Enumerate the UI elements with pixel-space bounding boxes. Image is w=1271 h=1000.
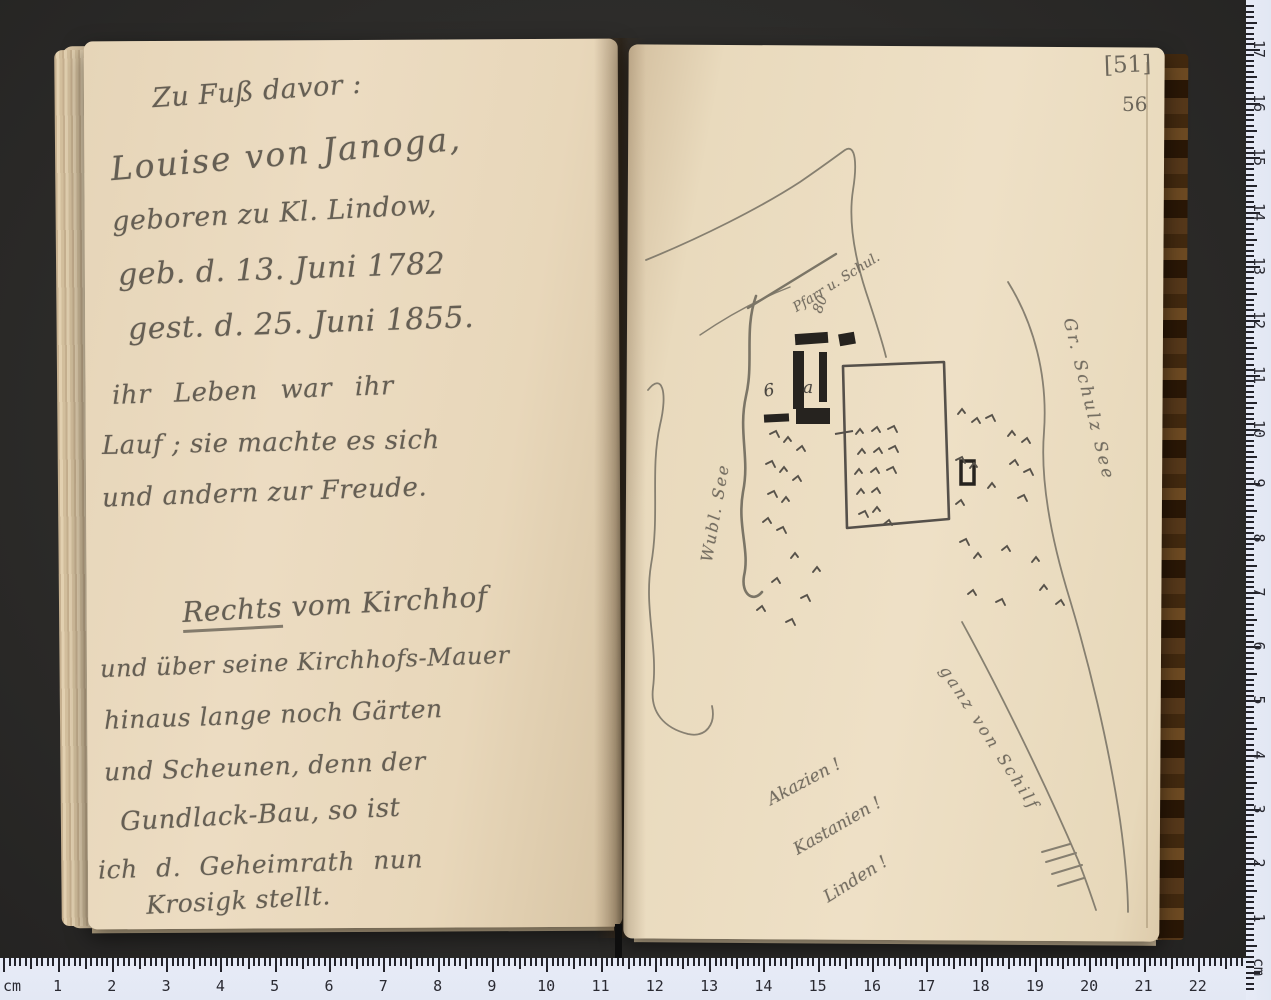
ruler-tick	[953, 958, 955, 969]
ruler-tick	[725, 958, 727, 966]
ruler-tick	[101, 958, 103, 966]
ruler-tick	[666, 958, 668, 966]
ruler-tick	[899, 958, 901, 969]
ruler-tick	[1246, 505, 1254, 507]
ruler-tick	[606, 958, 608, 966]
ruler-tick	[362, 958, 364, 966]
ruler-tick	[1154, 958, 1156, 966]
ruler-tick	[910, 958, 912, 966]
ruler-tick	[720, 958, 722, 966]
ruler-tick	[763, 958, 765, 972]
ruler-tick	[535, 958, 537, 966]
ruler-tick	[1246, 396, 1254, 398]
ruler-tick	[334, 958, 336, 966]
ruler-number: 3	[154, 977, 178, 995]
ruler-tick	[96, 958, 98, 966]
ruler-number: 17	[914, 977, 938, 995]
ruler-tick	[318, 958, 320, 966]
ruler-number: 2	[100, 977, 124, 995]
ruler-number: 14	[1250, 200, 1268, 224]
ruler-tick	[1105, 958, 1107, 966]
ruler-tick	[888, 958, 890, 966]
ruler-tick	[677, 958, 679, 966]
ruler-tick	[1246, 130, 1257, 132]
ruler-number: 11	[1250, 363, 1268, 387]
ruler-tick	[541, 958, 543, 966]
ruler-tick	[372, 958, 374, 966]
ruler-tick	[134, 958, 136, 966]
ruler-tick	[367, 958, 369, 966]
ruler-tick	[514, 958, 516, 966]
ruler-tick	[1246, 337, 1254, 339]
ruler-tick	[400, 958, 402, 966]
ruler-tick	[264, 958, 266, 966]
ruler-number: 17	[1250, 37, 1268, 61]
ruler-tick	[1051, 958, 1053, 966]
ruler-tick	[1246, 499, 1254, 501]
ruler-tick	[52, 958, 54, 966]
ruler-tick	[986, 958, 988, 966]
ruler-tick	[220, 958, 222, 972]
ruler-tick	[769, 958, 771, 966]
ruler-tick	[421, 958, 423, 966]
ruler-tick	[590, 958, 592, 966]
ruler-tick	[1246, 776, 1254, 778]
ruler-tick	[1246, 81, 1254, 83]
ruler-tick	[823, 958, 825, 966]
ruler-tick	[30, 958, 32, 969]
ruler-tick	[1246, 890, 1257, 892]
ruler-tick	[905, 958, 907, 966]
ruler-tick	[867, 958, 869, 966]
ruler-tick	[1246, 901, 1254, 903]
ruler-tick	[144, 958, 146, 966]
ruler-tick	[1246, 342, 1254, 344]
ruler-tick	[1246, 228, 1254, 230]
ruler-tick	[1246, 5, 1254, 7]
ruler-tick	[1165, 958, 1167, 966]
ruler-tick	[9, 958, 11, 966]
ruler-number: 15	[1250, 145, 1268, 169]
ruler-tick	[454, 958, 456, 966]
ruler-tick	[1246, 288, 1254, 290]
ruler-tick	[1029, 958, 1031, 966]
ruler-tick	[601, 958, 603, 972]
ruler-number: 11	[589, 977, 613, 995]
ruler-tick	[1246, 65, 1254, 67]
ruler-tick	[1246, 461, 1254, 463]
ruler-tick	[801, 958, 803, 966]
ruler-tick	[1246, 624, 1254, 626]
ruler-tick	[182, 958, 184, 966]
ruler-number: 5	[263, 977, 287, 995]
ruler-tick	[340, 958, 342, 966]
ruler-number: 2	[1250, 851, 1268, 875]
notebook-photograph: Zu Fuß davor : Louise von Janoga, gebore…	[0, 0, 1271, 1000]
ruler-number: 4	[208, 977, 232, 995]
ruler-tick	[1246, 771, 1254, 773]
ruler-tick	[1116, 958, 1118, 969]
ruler-tick	[1144, 958, 1146, 972]
ruler-number: 12	[1250, 308, 1268, 332]
ruler-tick	[997, 958, 999, 966]
ruler-tick	[188, 958, 190, 966]
ruler-tick	[1127, 958, 1129, 966]
ruler-tick	[123, 958, 125, 966]
ruler-tick	[845, 958, 847, 969]
ruler-tick	[481, 958, 483, 966]
ruler-tick	[476, 958, 478, 966]
ruler-number: 1	[46, 977, 70, 995]
ruler-tick	[1246, 11, 1254, 13]
ruler-tick	[1246, 22, 1257, 24]
ruler-tick	[1209, 958, 1211, 966]
ruler-tick	[1246, 950, 1254, 952]
ruler-tick	[204, 958, 206, 966]
ruler-tick	[1187, 958, 1189, 966]
ruler-tick	[1122, 958, 1124, 966]
ruler-tick	[530, 958, 532, 966]
ruler-tick	[497, 958, 499, 966]
ruler-tick	[345, 958, 347, 966]
ruler-tick	[269, 958, 271, 966]
right-cm-ruler: 1716151413121110987654321cm	[1246, 0, 1271, 1000]
ruler-tick	[74, 958, 76, 966]
ruler-tick	[1246, 847, 1254, 849]
underlined-word: Rechts	[181, 591, 283, 633]
ruler-tick	[1246, 782, 1257, 784]
ruler-tick	[508, 958, 510, 966]
ruler-tick	[307, 958, 309, 966]
ruler-number: 21	[1132, 977, 1156, 995]
ruler-tick	[1084, 958, 1086, 966]
ruler-tick	[172, 958, 174, 966]
ruler-tick	[1246, 510, 1257, 512]
ruler-tick	[796, 958, 798, 966]
ruler-tick	[1246, 445, 1254, 447]
ruler-tick	[1246, 190, 1254, 192]
ruler-tick	[193, 958, 195, 969]
ruler-tick	[177, 958, 179, 966]
ruler-tick	[351, 958, 353, 966]
ruler-tick	[1220, 958, 1222, 966]
ruler-tick	[1111, 958, 1113, 966]
ruler-tick	[280, 958, 282, 966]
ruler-tick	[486, 958, 488, 966]
ruler-tick	[883, 958, 885, 966]
ruler-number: 6	[1250, 634, 1268, 658]
ruler-tick	[1246, 630, 1254, 632]
ruler-tick	[964, 958, 966, 966]
ruler-tick	[546, 958, 548, 972]
ruler-tick	[79, 958, 81, 966]
ruler-tick	[1046, 958, 1048, 966]
ruler-tick	[1198, 958, 1200, 972]
ruler-tick	[1246, 559, 1254, 561]
ruler-tick	[1246, 141, 1254, 143]
ruler-tick	[1176, 958, 1178, 966]
ruler-tick	[1035, 958, 1037, 972]
ruler-tick	[579, 958, 581, 966]
ruler-tick	[584, 958, 586, 966]
ruler-tick	[1246, 521, 1254, 523]
ruler-tick	[1246, 885, 1254, 887]
ruler-tick	[839, 958, 841, 966]
ruler-tick	[829, 958, 831, 966]
ruler-number: 1	[1250, 906, 1268, 930]
ruler-tick	[1246, 793, 1254, 795]
ruler-tick	[3, 958, 5, 972]
ruler-tick	[557, 958, 559, 966]
page-number-plain: 56	[1122, 92, 1147, 116]
ruler-tick	[68, 958, 70, 966]
ruler-tick	[1241, 958, 1243, 966]
ruler-tick	[758, 958, 760, 966]
ruler-tick	[932, 958, 934, 966]
ruler-number: 13	[1250, 254, 1268, 278]
ruler-number: 7	[371, 977, 395, 995]
ruler-tick	[611, 958, 613, 966]
ruler-tick	[1246, 195, 1254, 197]
ruler-tick	[1246, 402, 1257, 404]
ruler-tick	[1214, 958, 1216, 966]
ruler-tick	[296, 958, 298, 966]
ruler-tick	[242, 958, 244, 966]
ruler-tick	[150, 958, 152, 966]
ruler-number: 16	[1250, 91, 1268, 115]
ruler-tick	[1246, 896, 1254, 898]
right-page	[623, 44, 1164, 941]
ruler-tick	[1246, 76, 1257, 78]
ruler-tick	[1246, 185, 1257, 187]
ruler-tick	[1040, 958, 1042, 966]
ruler-tick	[248, 958, 250, 969]
ruler-tick	[432, 958, 434, 966]
ruler-tick	[1246, 353, 1254, 355]
ruler-tick	[1246, 825, 1254, 827]
ruler-number: 9	[480, 977, 504, 995]
ruler-tick	[1246, 16, 1254, 18]
ruler-tick	[1246, 608, 1254, 610]
ruler-tick	[1073, 958, 1075, 966]
ruler-tick	[1246, 174, 1254, 176]
ruler-tick	[519, 958, 521, 969]
ruler-tick	[812, 958, 814, 966]
ruler-tick	[1078, 958, 1080, 966]
ruler-tick	[655, 958, 657, 972]
ruler-tick	[155, 958, 157, 966]
ruler-tick	[459, 958, 461, 966]
ruler-tick	[1246, 619, 1257, 621]
ruler-tick	[1246, 945, 1257, 947]
ruler-tick	[438, 958, 440, 972]
ruler-tick	[970, 958, 972, 966]
ruler-tick	[818, 958, 820, 972]
ruler-tick	[1246, 27, 1254, 29]
ruler-tick	[1246, 407, 1254, 409]
ruler-tick	[36, 958, 38, 966]
ruler-tick	[1246, 679, 1254, 681]
ruler-number: 20	[1077, 977, 1101, 995]
ruler-number: 6	[317, 977, 341, 995]
ruler-tick	[1246, 662, 1254, 664]
ruler-tick	[628, 958, 630, 969]
ruler-number: 10	[1250, 417, 1268, 441]
ruler-tick	[25, 958, 27, 966]
ruler-tick	[1246, 717, 1254, 719]
ruler-tick	[286, 958, 288, 966]
ruler-number: 3	[1250, 797, 1268, 821]
ruler-tick	[1246, 125, 1254, 127]
ruler-tick	[1089, 958, 1091, 972]
ruler-tick	[1246, 787, 1254, 789]
ruler-tick	[389, 958, 391, 966]
ruler-tick	[1236, 958, 1238, 966]
ruler-tick	[1171, 958, 1173, 969]
ruler-tick	[443, 958, 445, 966]
ruler-tick	[1246, 576, 1254, 578]
ruler-tick	[807, 958, 809, 966]
ruler-tick	[682, 958, 684, 969]
ruler-tick	[231, 958, 233, 966]
ruler-number: 10	[534, 977, 558, 995]
ruler-tick	[63, 958, 65, 966]
book-gutter-shadow	[594, 38, 646, 938]
ruler-tick	[1095, 958, 1097, 966]
ruler-tick	[693, 958, 695, 966]
ruler-tick	[785, 958, 787, 966]
ruler-number: 13	[697, 977, 721, 995]
ruler-tick	[1246, 668, 1254, 670]
ruler-tick	[921, 958, 923, 966]
ruler-tick	[427, 958, 429, 966]
ruler-tick	[1246, 831, 1254, 833]
ruler-tick	[1246, 565, 1257, 567]
ruler-tick	[698, 958, 700, 966]
ruler-tick	[416, 958, 418, 966]
map-label-a: a	[803, 378, 813, 398]
ruler-tick	[329, 958, 331, 972]
ruler-tick	[14, 958, 16, 966]
ruler-tick	[639, 958, 641, 966]
ruler-number: 7	[1250, 580, 1268, 604]
ruler-number: 18	[969, 977, 993, 995]
ruler-tick	[226, 958, 228, 966]
ruler-tick	[465, 958, 467, 969]
ruler-tick	[1057, 958, 1059, 966]
ruler-tick	[1203, 958, 1205, 966]
ruler-tick	[856, 958, 858, 966]
ruler-tick	[378, 958, 380, 966]
ruler-tick	[780, 958, 782, 966]
ruler-number: 14	[751, 977, 775, 995]
ruler-tick	[1008, 958, 1010, 969]
ruler-tick	[1246, 983, 1254, 985]
ruler-number: 15	[806, 977, 830, 995]
ruler-tick	[41, 958, 43, 966]
ruler-number: 8	[426, 977, 450, 995]
ruler-tick	[568, 958, 570, 966]
ruler-tick	[1192, 958, 1194, 966]
ruler-tick	[1225, 958, 1227, 969]
ruler-tick	[405, 958, 407, 966]
ruler-tick	[117, 958, 119, 966]
ruler-tick	[302, 958, 304, 969]
ruler-tick	[356, 958, 358, 969]
ruler-tick	[1246, 239, 1257, 241]
ruler-tick	[704, 958, 706, 966]
ruler-tick	[1246, 451, 1254, 453]
ruler-tick	[894, 958, 896, 966]
ruler-tick	[1246, 244, 1254, 246]
ruler-tick	[1246, 934, 1254, 936]
ruler-tick	[715, 958, 717, 966]
ruler-tick	[1246, 119, 1254, 121]
ruler-tick	[731, 958, 733, 966]
ruler-tick	[975, 958, 977, 966]
ruler-number: 12	[643, 977, 667, 995]
ruler-tick	[410, 958, 412, 969]
ruler-tick	[1230, 958, 1232, 966]
ruler-tick	[595, 958, 597, 966]
ruler-tick	[1246, 728, 1257, 730]
ruler-tick	[291, 958, 293, 966]
ruler-tick	[981, 958, 983, 972]
ruler-tick	[1246, 614, 1254, 616]
ruler-tick	[660, 958, 662, 966]
ruler-tick	[1019, 958, 1021, 966]
ruler-tick	[237, 958, 239, 966]
ruler-tick	[1246, 304, 1254, 306]
ruler-tick	[275, 958, 277, 972]
ruler-tick	[90, 958, 92, 966]
ruler-tick	[850, 958, 852, 966]
ruler-tick	[1246, 570, 1254, 572]
ruler-tick	[1246, 722, 1254, 724]
ruler-tick	[1246, 733, 1254, 735]
ruler-tick	[1002, 958, 1004, 966]
ruler-number: 8	[1250, 526, 1268, 550]
ruler-tick	[1246, 282, 1254, 284]
ruler-tick	[948, 958, 950, 966]
ruler-tick	[649, 958, 651, 966]
ruler-tick	[644, 958, 646, 966]
ruler-number: 19	[1023, 977, 1047, 995]
ruler-tick	[166, 958, 168, 972]
ruler-tick	[1246, 456, 1257, 458]
ruler-tick	[1246, 87, 1254, 89]
ruler-number: 22	[1186, 977, 1210, 995]
right-page-crease	[1146, 62, 1148, 928]
ruler-tick	[747, 958, 749, 966]
ruler-tick	[943, 958, 945, 966]
ruler-tick	[139, 958, 141, 969]
ruler-tick	[1160, 958, 1162, 966]
ruler-tick	[106, 958, 108, 966]
ruler-tick	[524, 958, 526, 966]
ruler-tick	[258, 958, 260, 966]
ruler-tick	[253, 958, 255, 966]
ruler-tick	[161, 958, 163, 966]
ruler-tick	[58, 958, 60, 972]
ruler-tick	[1246, 233, 1254, 235]
ruler-tick	[633, 958, 635, 966]
ruler-number: 9	[1250, 471, 1268, 495]
ruler-tick	[573, 958, 575, 969]
ruler-tick	[1013, 958, 1015, 966]
ruler-tick	[1246, 673, 1257, 675]
ruler-tick	[687, 958, 689, 966]
